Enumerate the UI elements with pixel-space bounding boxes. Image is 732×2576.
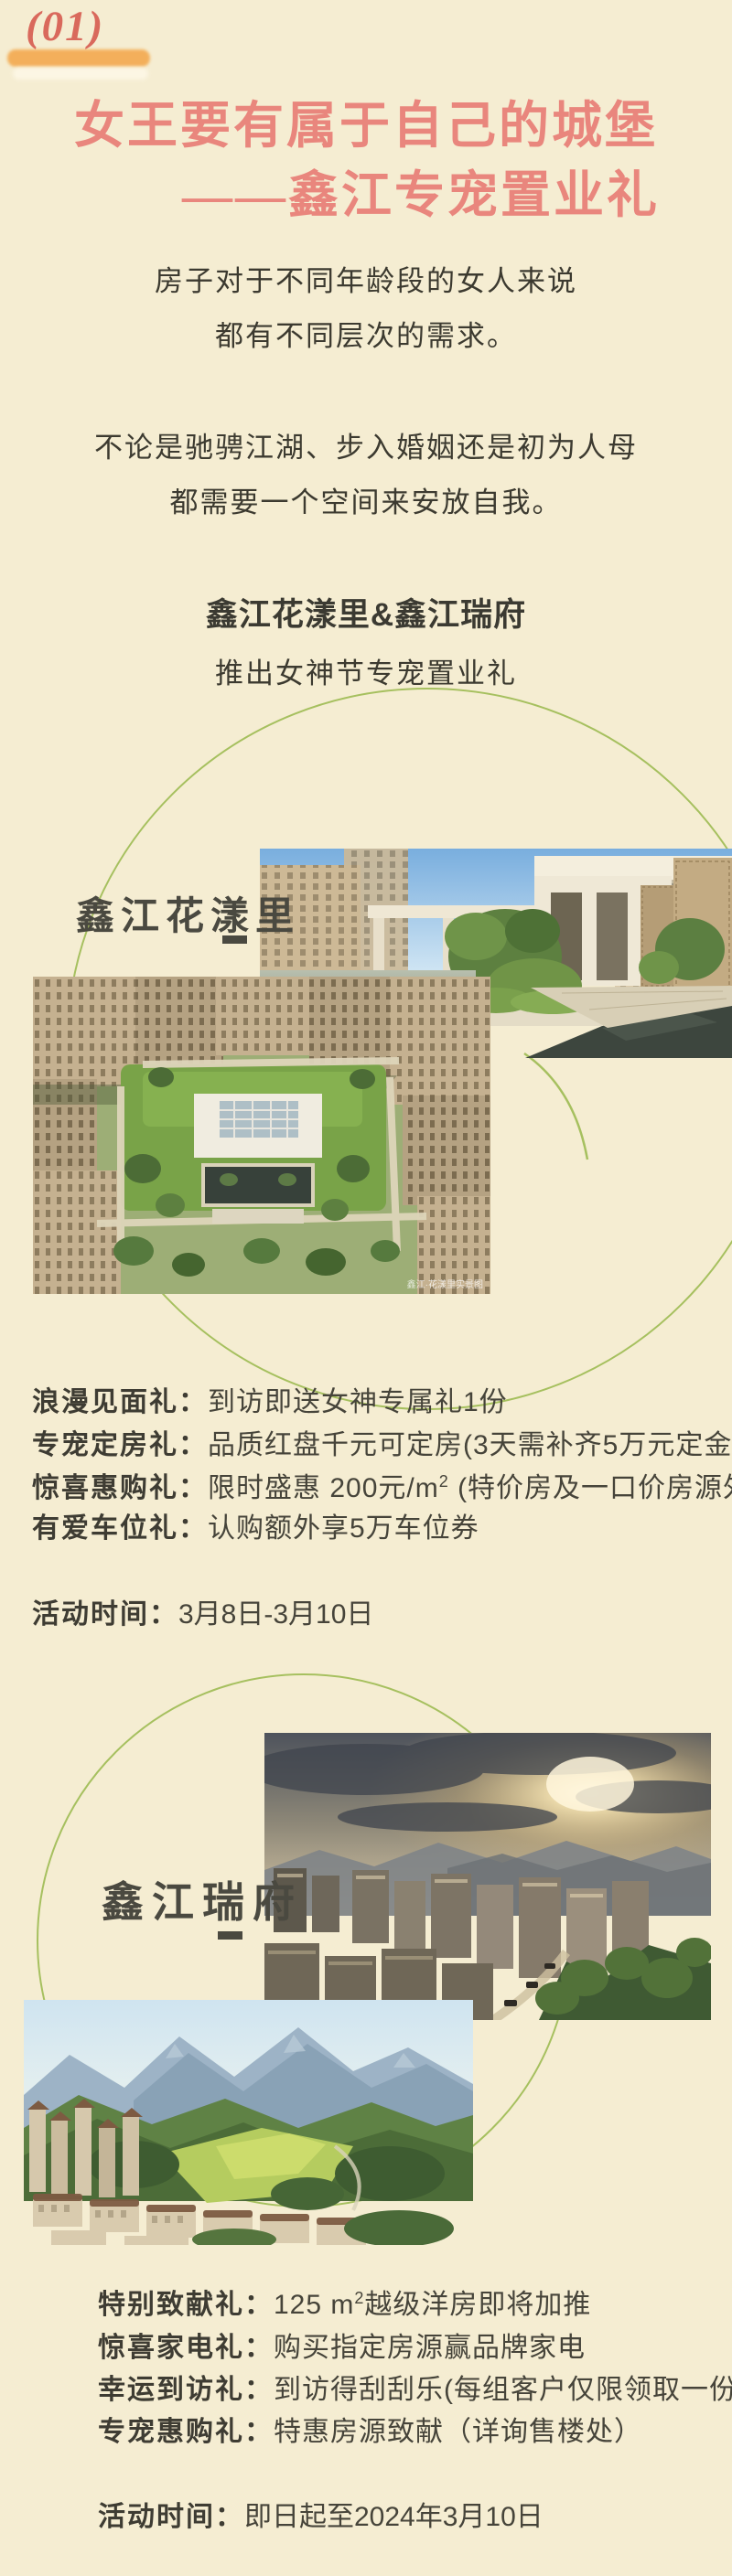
- intro-paragraph1-line2: 都有不同层次的需求。: [0, 313, 732, 354]
- offer-item: 惊喜惠购礼：限时盛惠 200元/m2 (特价房及一口价房源外): [32, 1465, 732, 1505]
- period-value: 3月8日-3月10日: [178, 1599, 373, 1630]
- offer-text: 125 m: [274, 2290, 354, 2320]
- activity-period-1: 活动时间：3月8日-3月10日: [32, 1591, 373, 1631]
- decorative-arc-segment: [512, 1047, 604, 1175]
- offer-label: 惊喜家电礼：: [98, 2333, 274, 2363]
- offer-label: 浪漫见面礼：: [32, 1387, 208, 1417]
- activity-period-2: 活动时间：即日起至2024年3月10日: [98, 2494, 544, 2534]
- offer-label: 幸运到访礼：: [98, 2375, 274, 2405]
- offer-text: 限时盛惠 200元/m: [208, 1473, 439, 1503]
- offer-item: 浪漫见面礼：到访即送女神专属礼1份: [32, 1379, 508, 1419]
- section-index-badge: (01): [26, 2, 104, 51]
- offer-label: 有爱车位礼：: [32, 1513, 208, 1544]
- offer-text: 到访得刮刮乐(每组客户仅限领取一份): [274, 2375, 732, 2405]
- offer-sup: 2: [354, 2289, 364, 2307]
- offer-label: 惊喜惠购礼：: [32, 1473, 208, 1503]
- promo-poster: (01) 女王要有属于自己的城堡 ——鑫江专宠置业礼 房子对于不同年龄段的女人来…: [0, 0, 732, 2576]
- offer-item: 特别致献礼：125 m2越级洋房即将加推: [98, 2282, 591, 2322]
- project-label-ruifu: 鑫江瑞府: [102, 1869, 303, 1929]
- offer-item: 惊喜家电礼：购买指定房源赢品牌家电: [98, 2325, 586, 2365]
- offer-text: 到访即送女神专属礼1份: [208, 1387, 508, 1417]
- period-label: 活动时间：: [98, 2502, 244, 2532]
- page-title-line2: ——鑫江专宠置业礼: [55, 154, 732, 227]
- photo-huayangli-aerial: 鑫江·花漾里实景图: [33, 977, 490, 1294]
- intro-paragraph2-line2: 都需要一个空间来安放自我。: [0, 479, 732, 520]
- intro-paragraph2-line1: 不论是驰骋江湖、步入婚姻还是初为人母: [0, 424, 732, 465]
- label-dash-2: [218, 1931, 242, 1940]
- highlight-bar-light: [13, 68, 148, 80]
- projects-names-line: 鑫江花漾里&鑫江瑞府: [0, 589, 732, 636]
- offer-text: 品质红盘千元可定房(3天需补齐5万元定金）: [208, 1430, 732, 1460]
- period-value: 即日起至2024年3月10日: [244, 2502, 544, 2532]
- offer-label: 特别致献礼：: [98, 2290, 274, 2320]
- period-label: 活动时间：: [32, 1599, 178, 1630]
- offer-label: 专宠定房礼：: [32, 1430, 208, 1460]
- intro-paragraph1-line1: 房子对于不同年龄段的女人来说: [0, 258, 732, 299]
- photo-ruifu-sunset: [264, 1733, 711, 2020]
- offer-text: (特价房及一口价房源外): [449, 1473, 732, 1503]
- offer-sup: 2: [439, 1472, 449, 1491]
- page-title-line1: 女王要有属于自己的城堡: [0, 84, 732, 157]
- offer-text: 认购额外享5万车位券: [208, 1513, 479, 1544]
- offer-item: 专宠定房礼：品质红盘千元可定房(3天需补齐5万元定金）: [32, 1422, 732, 1462]
- highlight-bar-orange: [7, 49, 150, 67]
- offer-text: 特惠房源致献（详询售楼处）: [274, 2417, 642, 2447]
- offer-item: 有爱车位礼：认购额外享5万车位券: [32, 1505, 479, 1545]
- offer-label: 专宠惠购礼：: [98, 2417, 274, 2447]
- offer-text: 越级洋房即将加推: [364, 2290, 591, 2320]
- offer-item: 专宠惠购礼：特惠房源致献（详询售楼处）: [98, 2409, 642, 2449]
- label-dash-1: [222, 935, 247, 944]
- photo-ruifu-valley: [24, 2000, 473, 2245]
- offer-text: 购买指定房源赢品牌家电: [274, 2333, 586, 2363]
- offer-item: 幸运到访礼：到访得刮刮乐(每组客户仅限领取一份): [98, 2367, 732, 2407]
- photo-watermark: 鑫江·花漾里实景图: [407, 1278, 483, 1290]
- promo-line: 推出女神节专宠置业礼: [0, 650, 732, 691]
- project-label-huayangli: 鑫江花漾里: [76, 885, 300, 941]
